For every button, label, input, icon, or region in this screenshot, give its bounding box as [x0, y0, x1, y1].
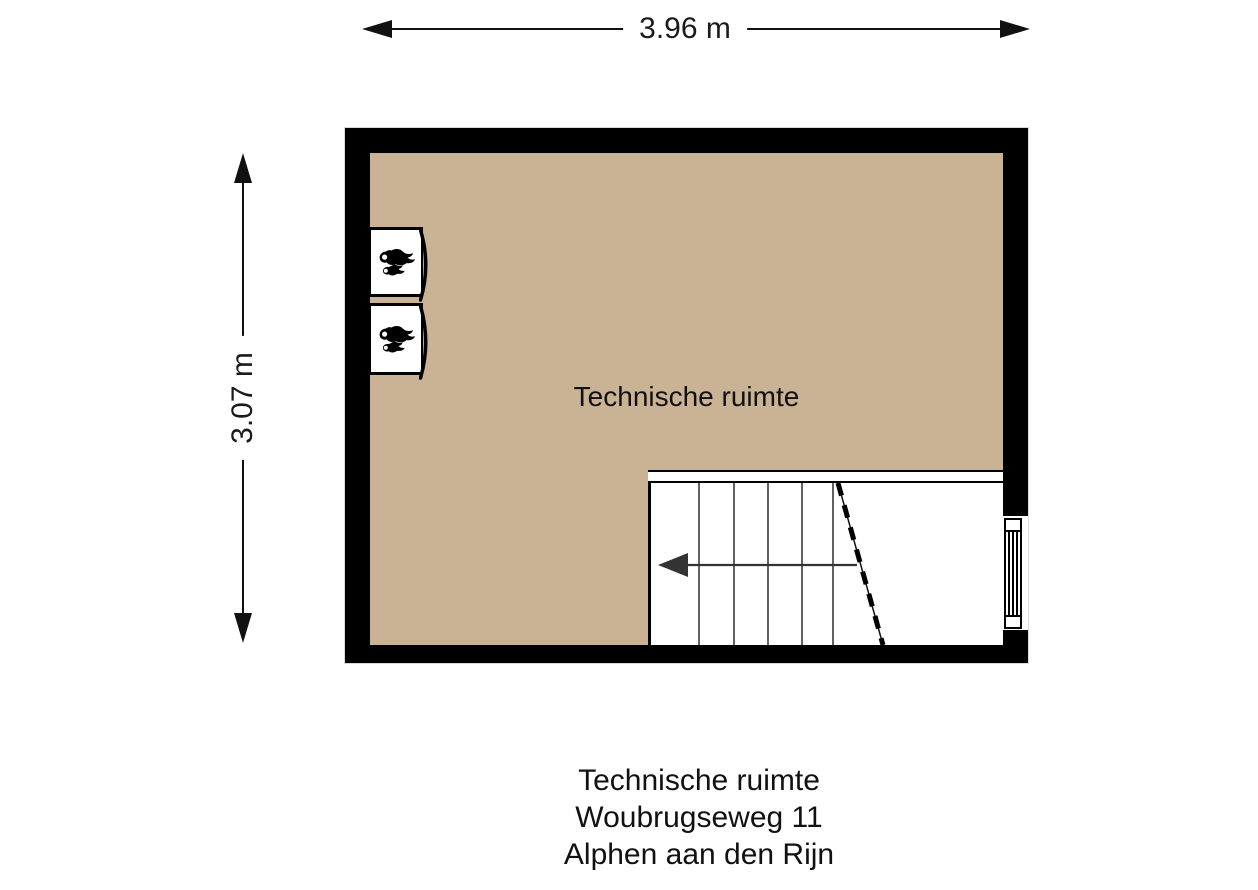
boiler-unit-bottom	[368, 303, 423, 375]
arrowhead-left-icon	[362, 20, 392, 38]
arrowhead-up-icon	[234, 153, 252, 183]
arrowhead-right-icon	[1000, 20, 1030, 38]
floor-plan-page: 3.96 m 3.07 m	[0, 0, 1258, 890]
room-label: Technische ruimte	[370, 381, 1003, 413]
caption-street: Woubrugseweg 11	[449, 799, 949, 836]
stair-direction-arrow-icon	[658, 553, 857, 577]
caption-city: Alphen aan den Rijn	[449, 836, 949, 873]
arrowhead-down-icon	[234, 613, 252, 643]
dimension-height-label: 3.07 m	[226, 336, 260, 460]
boiler-door-arc	[419, 227, 432, 303]
staircase	[648, 470, 1003, 645]
flame-icon	[376, 325, 416, 354]
caption: Technische ruimte Woubrugseweg 11 Alphen…	[449, 762, 949, 873]
window-frame-bottom	[1006, 615, 1020, 617]
flame-icon	[376, 248, 416, 277]
caption-room-name: Technische ruimte	[449, 762, 949, 799]
boiler-unit-top	[368, 227, 423, 297]
window-glass-lines	[1006, 532, 1020, 615]
dimension-vertical: 3.07 m	[229, 153, 257, 643]
stair-treads-and-arrow	[648, 470, 1003, 645]
dimension-width-label: 3.96 m	[623, 12, 747, 46]
stair-top-rail	[648, 470, 1003, 483]
stair-left-edge	[648, 470, 651, 645]
boiler-door-arc	[419, 303, 432, 381]
window	[1004, 518, 1022, 629]
dimension-horizontal: 3.96 m	[362, 15, 1030, 43]
